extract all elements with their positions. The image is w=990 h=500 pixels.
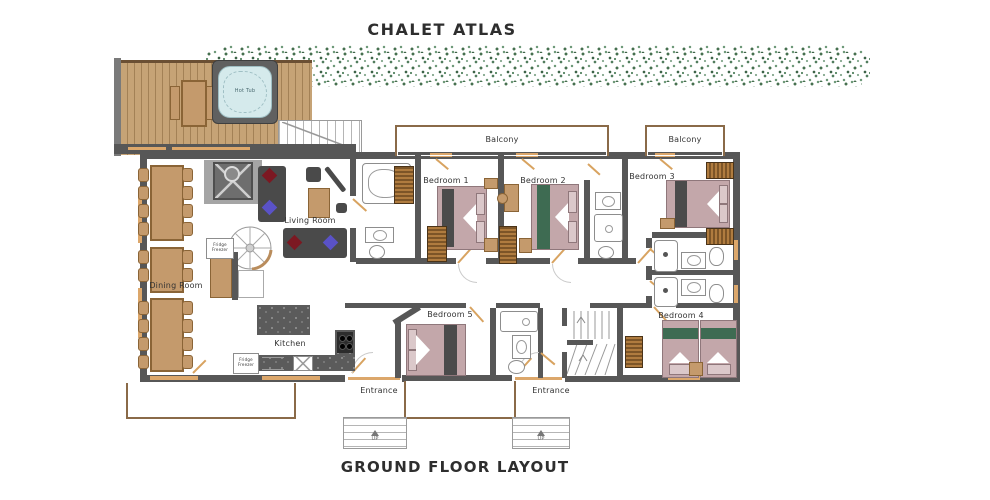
- wardrobe-bed1: [427, 226, 447, 262]
- dining-table-3: [150, 298, 184, 372]
- bath-tap: [522, 318, 530, 326]
- hob: [337, 332, 353, 353]
- dining-chair: [138, 337, 149, 351]
- sink-ensuite1: [365, 227, 394, 243]
- dining-chair: [182, 319, 193, 333]
- page-subtitle: GROUND FLOOR LAYOUT: [341, 458, 570, 476]
- hedge-band-top-edge: [222, 45, 852, 53]
- dining-chair: [138, 204, 149, 218]
- fridge-freezer-box-1: Fridge Freezer: [206, 238, 234, 259]
- bed2-pillow: [568, 221, 577, 243]
- wardrobe-bed3-top: [706, 162, 734, 179]
- window-deck-2: [172, 147, 250, 150]
- wall-ensuite1-bed1: [415, 152, 421, 258]
- toilet-ensuite1: [369, 245, 385, 259]
- bed5-duvet-fold: [416, 335, 430, 365]
- wall-corridor-bottom-4: [676, 303, 740, 308]
- bedroom4-label: Bedroom 4: [658, 311, 704, 320]
- deck-bench-left: [170, 86, 180, 120]
- sink-basin: [602, 196, 615, 207]
- wall-stairs-bed4: [617, 308, 623, 378]
- bedroom5-label: Bedroom 5: [427, 310, 473, 319]
- bed3-pillow: [719, 185, 728, 204]
- toilet-bath3: [709, 247, 724, 266]
- hot-tub-label: Hot Tub: [235, 88, 255, 94]
- dining-table-1: [150, 165, 184, 241]
- bed2-pillow: [568, 191, 577, 213]
- bed4a-runner: [663, 328, 698, 339]
- window-right-2: [734, 285, 738, 303]
- fridge-freezer-label-1: Fridge Freezer: [209, 243, 231, 253]
- dining-chair: [182, 337, 193, 351]
- sink-bath3: [681, 252, 706, 269]
- entrance-right-label: Entrance: [532, 386, 569, 395]
- desk-bed3: [660, 218, 675, 229]
- kitchen-drawers: [262, 357, 284, 370]
- up-label-right: UP: [537, 436, 544, 442]
- dining-chair: [182, 250, 193, 264]
- sink-basin: [687, 282, 701, 293]
- toilet-ensuite2: [598, 246, 614, 259]
- window-right-1: [734, 240, 738, 260]
- kitchen-label: Kitchen: [274, 339, 305, 348]
- fireplace: [204, 160, 262, 204]
- kitchen-sink: [293, 356, 313, 371]
- balcony-right: Balcony: [645, 125, 725, 156]
- bed2-duvet-fold: [555, 202, 569, 232]
- dining-chair: [138, 222, 149, 236]
- sink-basin: [516, 340, 527, 354]
- dining-chair: [182, 186, 193, 200]
- entrance-right-steps: UP: [512, 417, 570, 449]
- dining-chair: [182, 168, 193, 182]
- sink-basin: [373, 230, 387, 241]
- nightstand-bed4: [689, 362, 703, 376]
- terrace-bottom-left: [126, 383, 296, 419]
- stool: [336, 203, 347, 213]
- bed4b-duvet-fold: [707, 352, 729, 363]
- fridge-freezer-label-2: Fridge Freezer: [235, 358, 257, 368]
- bed3-pillow: [719, 204, 728, 223]
- interior-staircase: [567, 311, 617, 376]
- wall-bed2-ensuite2: [584, 180, 590, 258]
- dining-chair: [138, 319, 149, 333]
- desk-chair-bed2: [497, 193, 508, 204]
- coffee-table: [308, 188, 330, 218]
- hot-tub: Hot Tub: [212, 60, 278, 124]
- deck-table: [181, 80, 207, 127]
- hob-burner: [339, 335, 346, 342]
- fridge-freezer-box-2: Fridge Freezer: [233, 353, 259, 374]
- nightstand-bed2: [519, 238, 532, 253]
- bath-tap: [605, 225, 613, 233]
- dining-chair: [138, 301, 149, 315]
- hob-burner: [339, 343, 346, 350]
- wardrobe-bed4: [625, 336, 643, 368]
- wall-bathcol-left-a: [646, 238, 652, 248]
- window-bottom-2: [262, 376, 320, 380]
- dining-chair: [182, 355, 193, 369]
- wardrobe-bed3-bottom: [706, 228, 734, 245]
- bed-double-5: [406, 324, 466, 376]
- living-room-label: Living Room: [284, 216, 335, 225]
- bed4a-duvet-fold: [669, 352, 691, 363]
- wall-living-ensuite1-a: [350, 152, 356, 196]
- entrance-left-steps: UP: [343, 417, 407, 449]
- wall-corridor-bottom-1: [345, 303, 466, 308]
- bed1-duvet-fold: [463, 203, 477, 233]
- hob-burner: [346, 343, 353, 350]
- bath-ensuite2: [594, 214, 623, 242]
- shower-bath4: [654, 277, 678, 307]
- kitchen-island: [257, 305, 310, 335]
- shower-head: [663, 252, 668, 257]
- sink-basin: [687, 255, 701, 266]
- sink-ensuite2: [595, 192, 621, 210]
- wall-bed5-bath: [490, 308, 496, 378]
- dining-room-label: Dining Room: [149, 281, 202, 290]
- entrance-left-label: Entrance: [360, 386, 397, 395]
- bedroom1-label: Bedroom 1: [423, 176, 469, 185]
- sink-bathroom5: [512, 335, 531, 359]
- wall-living-ensuite1-b: [350, 228, 356, 262]
- fireplace-chimney-cap: [224, 166, 240, 182]
- dining-chair: [138, 186, 149, 200]
- bed3-runner: [675, 181, 687, 227]
- bath-bathroom5: [500, 311, 538, 332]
- toilet-bath4: [709, 284, 724, 303]
- up-label-left: UP: [371, 436, 378, 442]
- wardrobe-ensuite1: [394, 166, 414, 204]
- bed-twin-4b: [700, 320, 737, 378]
- armchair: [306, 167, 321, 182]
- dining-chair: [138, 250, 149, 264]
- threshold-entrance-left: [348, 377, 400, 380]
- bed1-pillow: [476, 193, 485, 215]
- bed-double-3: [666, 180, 730, 228]
- bed4b-runner: [701, 328, 736, 339]
- dining-chair: [138, 268, 149, 282]
- window-deck-1: [128, 147, 166, 150]
- wall-bed5-left: [395, 322, 401, 378]
- window-bottom-1: [150, 376, 198, 380]
- shower-bath3: [654, 240, 678, 272]
- wardrobe-bed2: [499, 226, 517, 264]
- wall-corridor-bottom-2: [496, 303, 540, 308]
- dining-chair: [138, 355, 149, 369]
- wall-ensuite2-bed3: [622, 152, 628, 258]
- stair-counter: [210, 258, 232, 298]
- terrace-bottom-middle: [404, 381, 516, 419]
- bed-double-2: [531, 184, 579, 250]
- dining-chair: [182, 222, 193, 236]
- wall-corridor-top-2: [486, 258, 550, 264]
- page-title: CHALET ATLAS: [367, 20, 516, 39]
- dining-chair: [182, 301, 193, 315]
- balcony-right-label: Balcony: [668, 135, 701, 144]
- under-stair-cupboard: [238, 270, 264, 298]
- balcony-top-label: Balcony: [485, 135, 518, 144]
- shower-head: [663, 288, 668, 293]
- sink-bath4: [681, 279, 706, 296]
- dining-chair: [182, 268, 193, 282]
- bed5-runner: [444, 325, 457, 375]
- dining-chair: [182, 204, 193, 218]
- nightstand-bed1-b: [484, 238, 498, 252]
- floor-plan: CHALET ATLAS Hot Tub Balcony: [0, 0, 990, 500]
- bed4b-pillow: [707, 364, 731, 375]
- bed2-runner: [537, 185, 550, 249]
- deck-left-wall: [114, 58, 121, 156]
- hob-burner: [346, 335, 353, 342]
- dining-chair: [138, 168, 149, 182]
- nightstand-bed1-a: [484, 178, 498, 189]
- toilet-bathroom5: [508, 360, 525, 374]
